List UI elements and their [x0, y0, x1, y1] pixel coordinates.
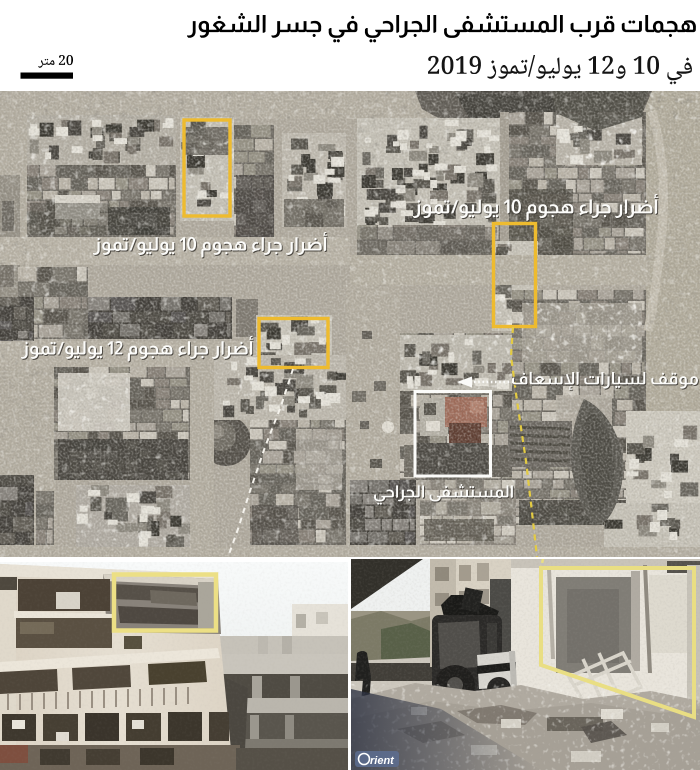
- svg-text:rient: rient: [370, 755, 395, 767]
